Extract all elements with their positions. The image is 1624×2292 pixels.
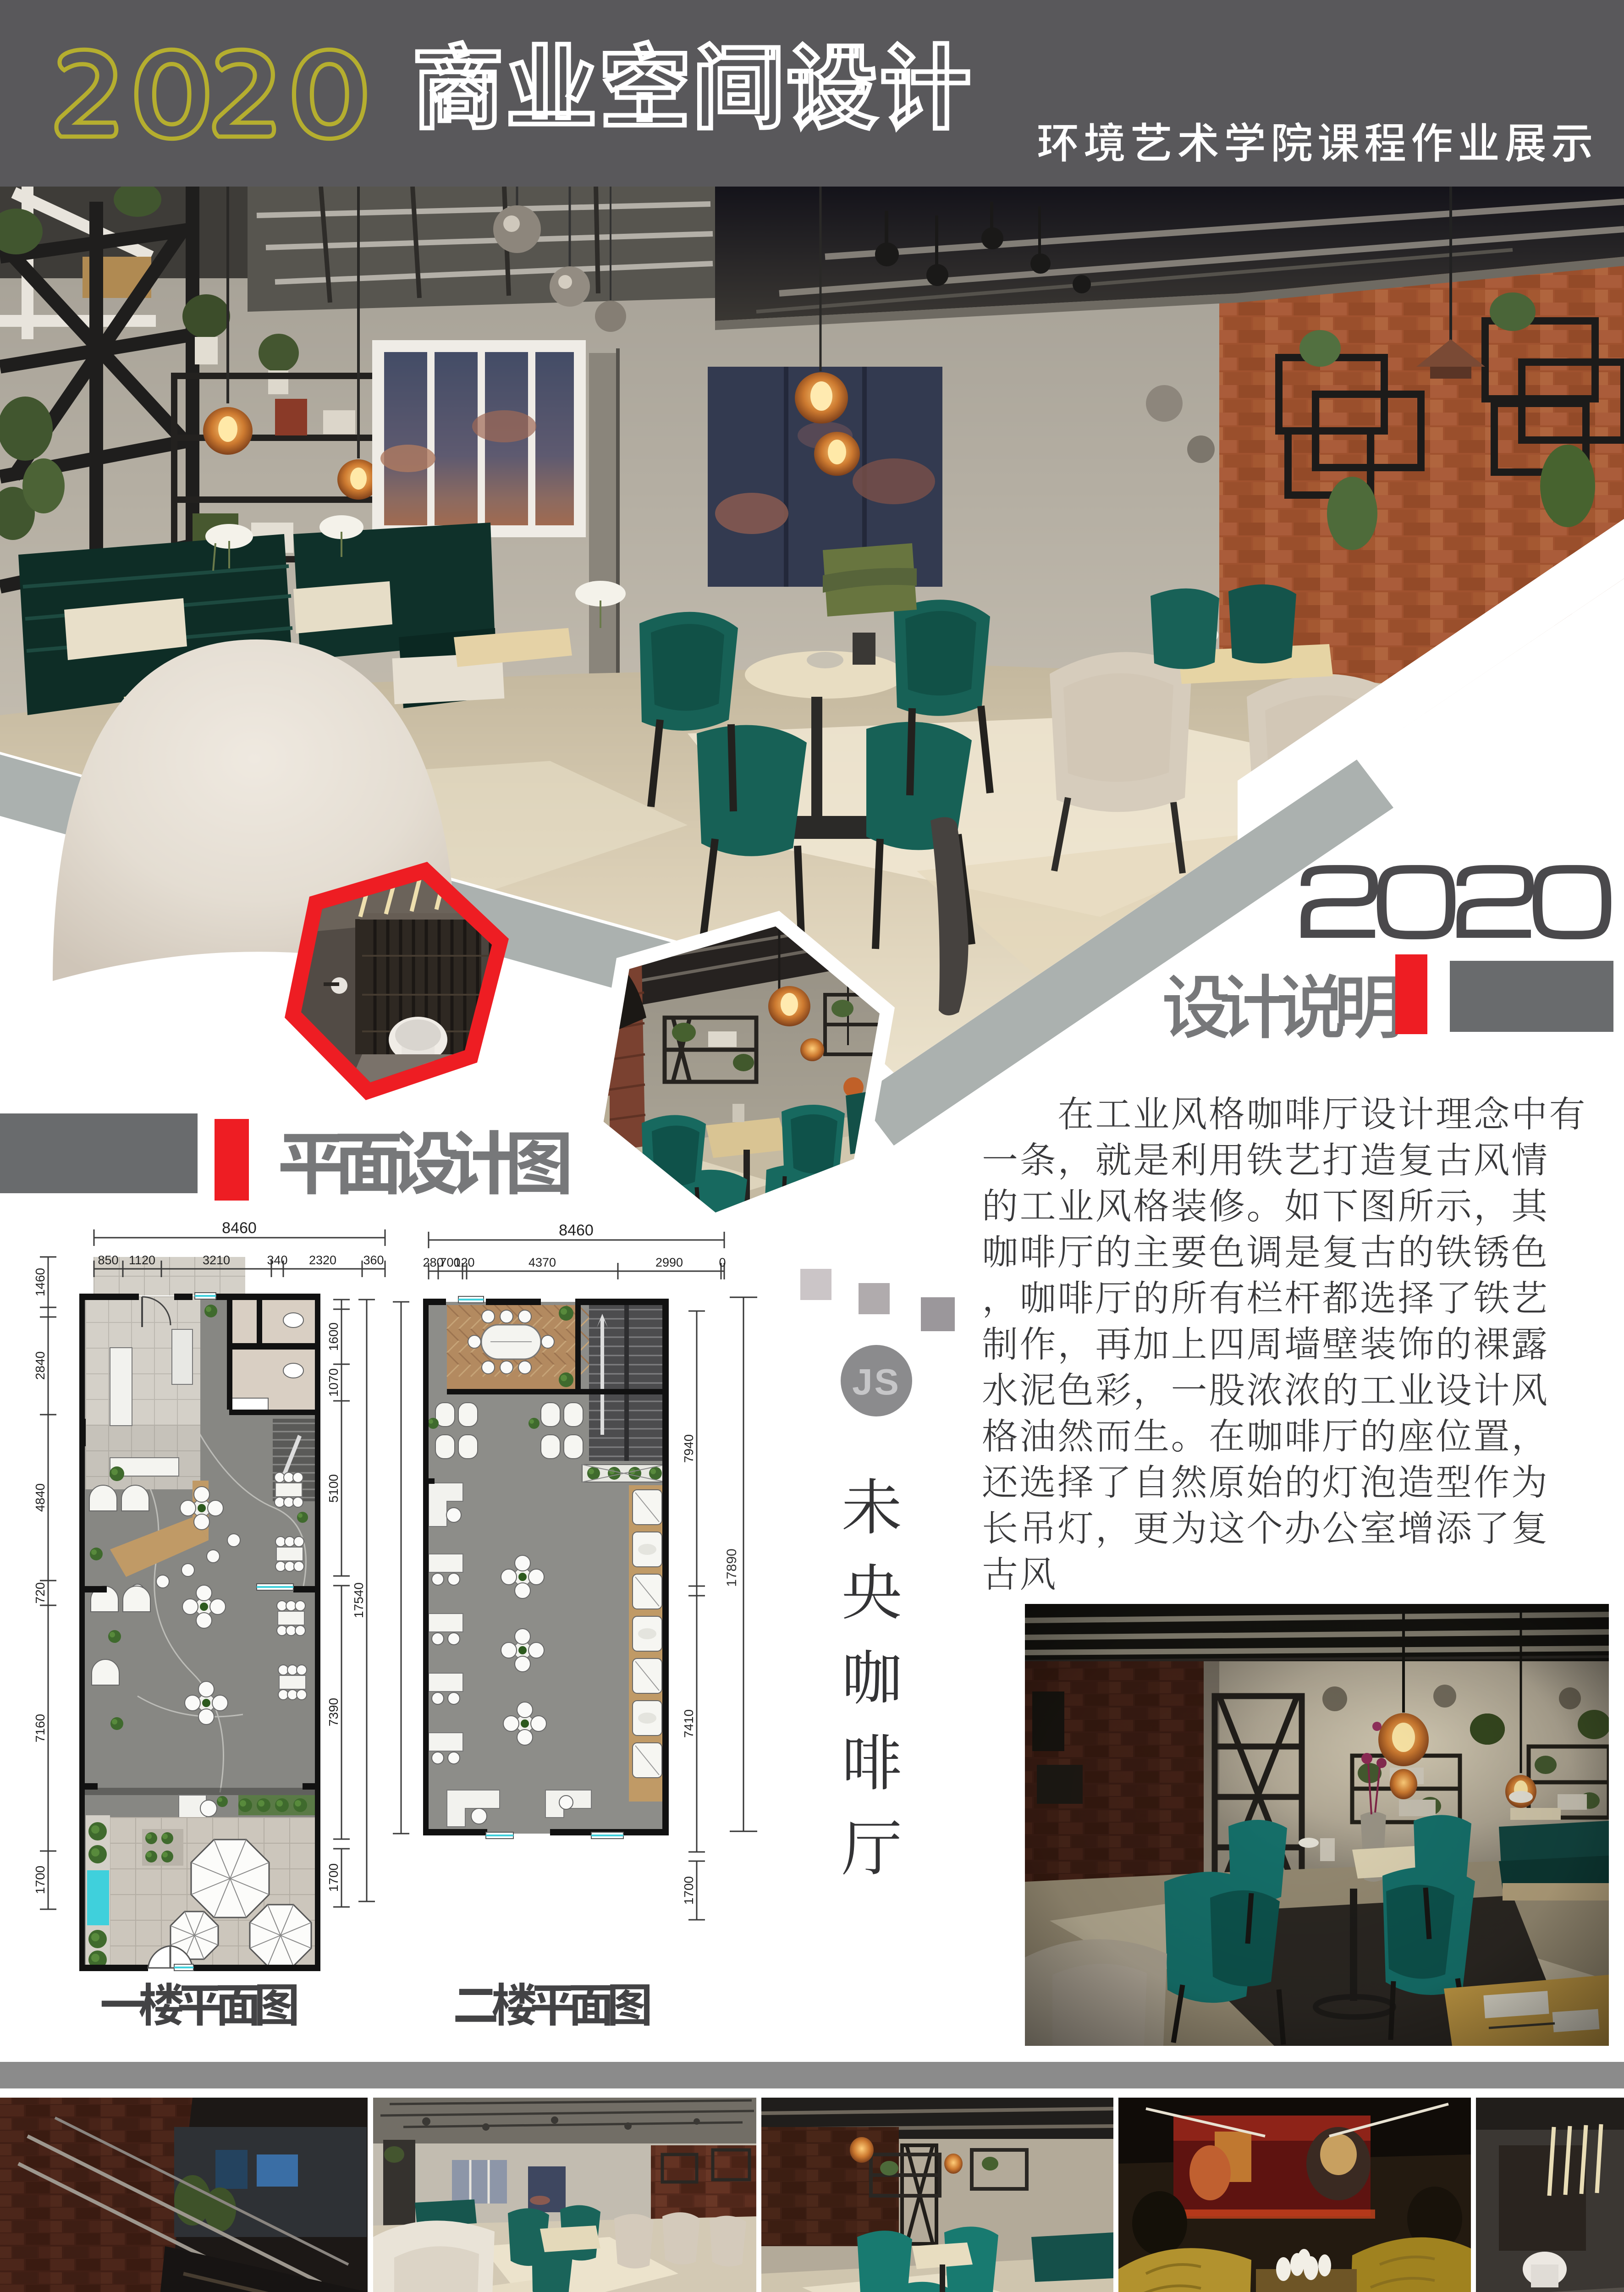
svg-text:7160: 7160 bbox=[33, 1714, 47, 1742]
svg-text:340: 340 bbox=[267, 1253, 287, 1267]
svg-text:1120: 1120 bbox=[129, 1253, 155, 1267]
svg-text:0: 0 bbox=[719, 1256, 726, 1269]
svg-text:4370: 4370 bbox=[528, 1256, 556, 1269]
svg-text:17890: 17890 bbox=[724, 1548, 739, 1587]
svg-text:7410: 7410 bbox=[682, 1709, 696, 1738]
svg-text:1460: 1460 bbox=[33, 1268, 47, 1296]
svg-text:5100: 5100 bbox=[326, 1474, 341, 1503]
svg-text:JS: JS bbox=[852, 1361, 901, 1402]
svg-text:7390: 7390 bbox=[326, 1698, 341, 1726]
svg-text:360: 360 bbox=[363, 1253, 384, 1267]
svg-text:4840: 4840 bbox=[33, 1483, 47, 1512]
svg-text:720: 720 bbox=[33, 1582, 47, 1604]
svg-text:3210: 3210 bbox=[203, 1253, 230, 1267]
svg-text:2840: 2840 bbox=[33, 1351, 47, 1380]
svg-text:1700: 1700 bbox=[682, 1876, 696, 1905]
svg-text:17540: 17540 bbox=[352, 1582, 366, 1618]
svg-text:1070: 1070 bbox=[326, 1368, 341, 1397]
svg-text:2320: 2320 bbox=[309, 1253, 336, 1267]
svg-text:1700: 1700 bbox=[33, 1866, 47, 1894]
svg-text:2990: 2990 bbox=[655, 1256, 683, 1269]
svg-text:7940: 7940 bbox=[682, 1434, 696, 1463]
svg-text:120: 120 bbox=[454, 1256, 474, 1269]
svg-text:8460: 8460 bbox=[222, 1219, 257, 1237]
svg-text:8460: 8460 bbox=[559, 1222, 594, 1239]
svg-text:850: 850 bbox=[98, 1253, 118, 1267]
svg-text:1600: 1600 bbox=[326, 1322, 341, 1351]
svg-text:1700: 1700 bbox=[326, 1863, 341, 1892]
